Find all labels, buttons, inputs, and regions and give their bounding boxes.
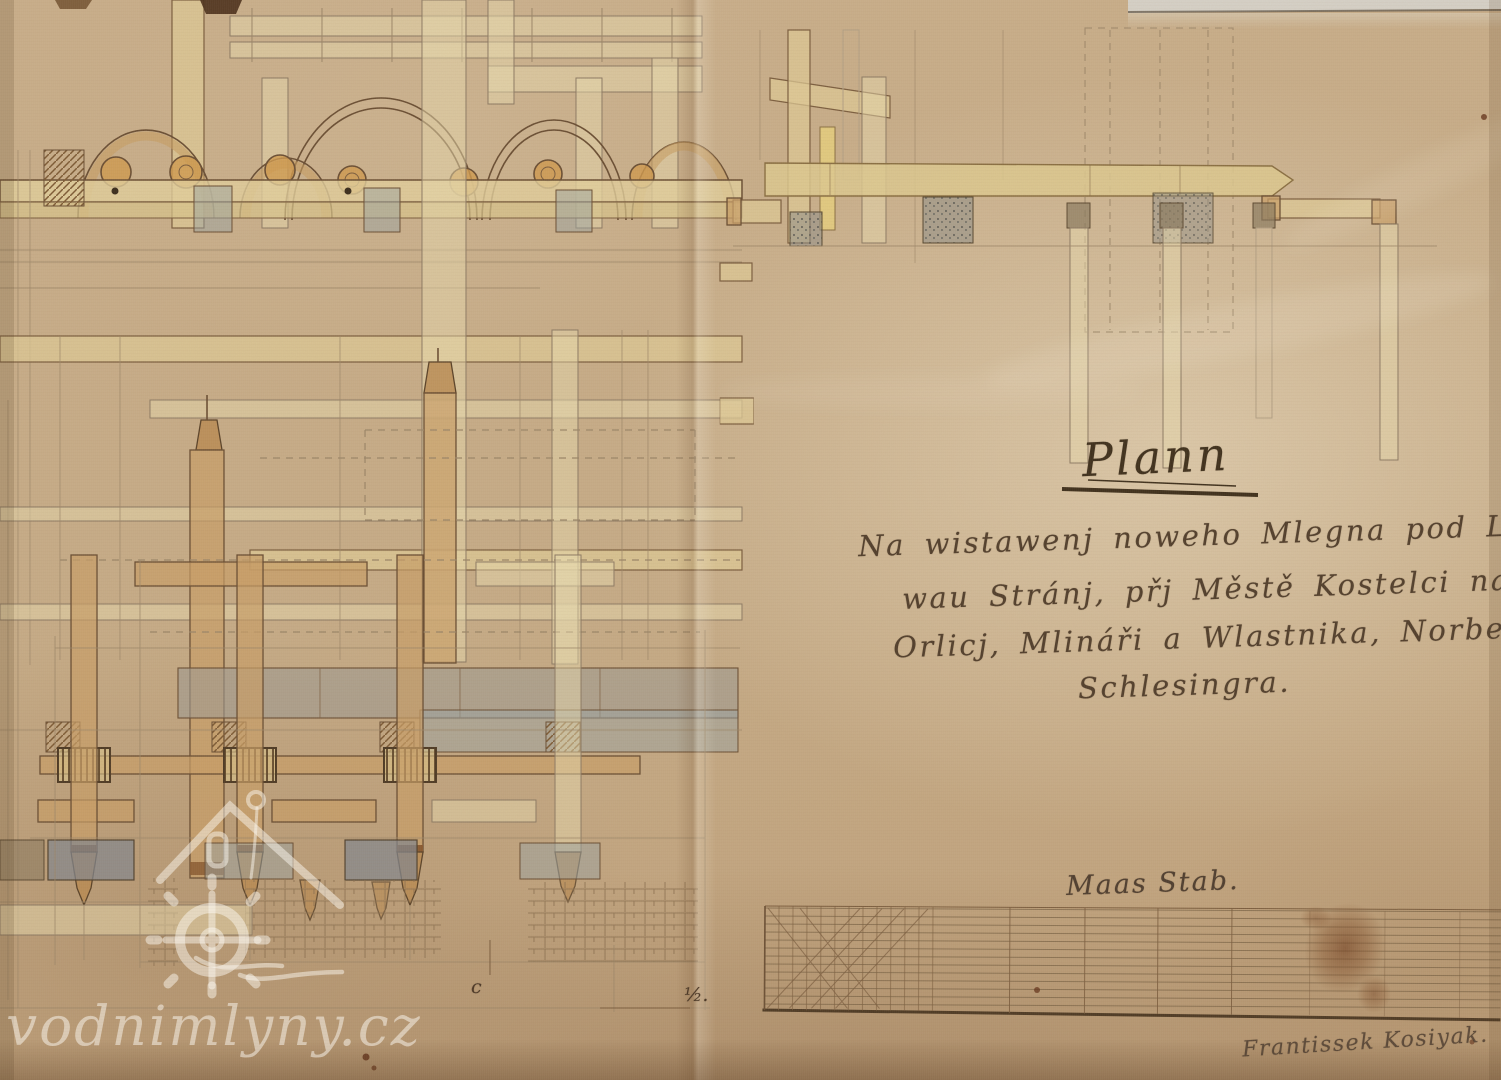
watermark-text: vodnimlyny.cz (6, 994, 422, 1058)
scale-label: Maas Stab. (1066, 865, 1241, 902)
description-line-4: Schlesingra. (1078, 665, 1292, 706)
plan-title: Plann (1081, 427, 1231, 487)
fold-mark: ½. (684, 984, 708, 1006)
scanned-mill-plan-document: Plann Na wistawenj noweho Mlegna pod Lip… (0, 0, 1501, 1080)
corner-mark: c (471, 976, 482, 998)
